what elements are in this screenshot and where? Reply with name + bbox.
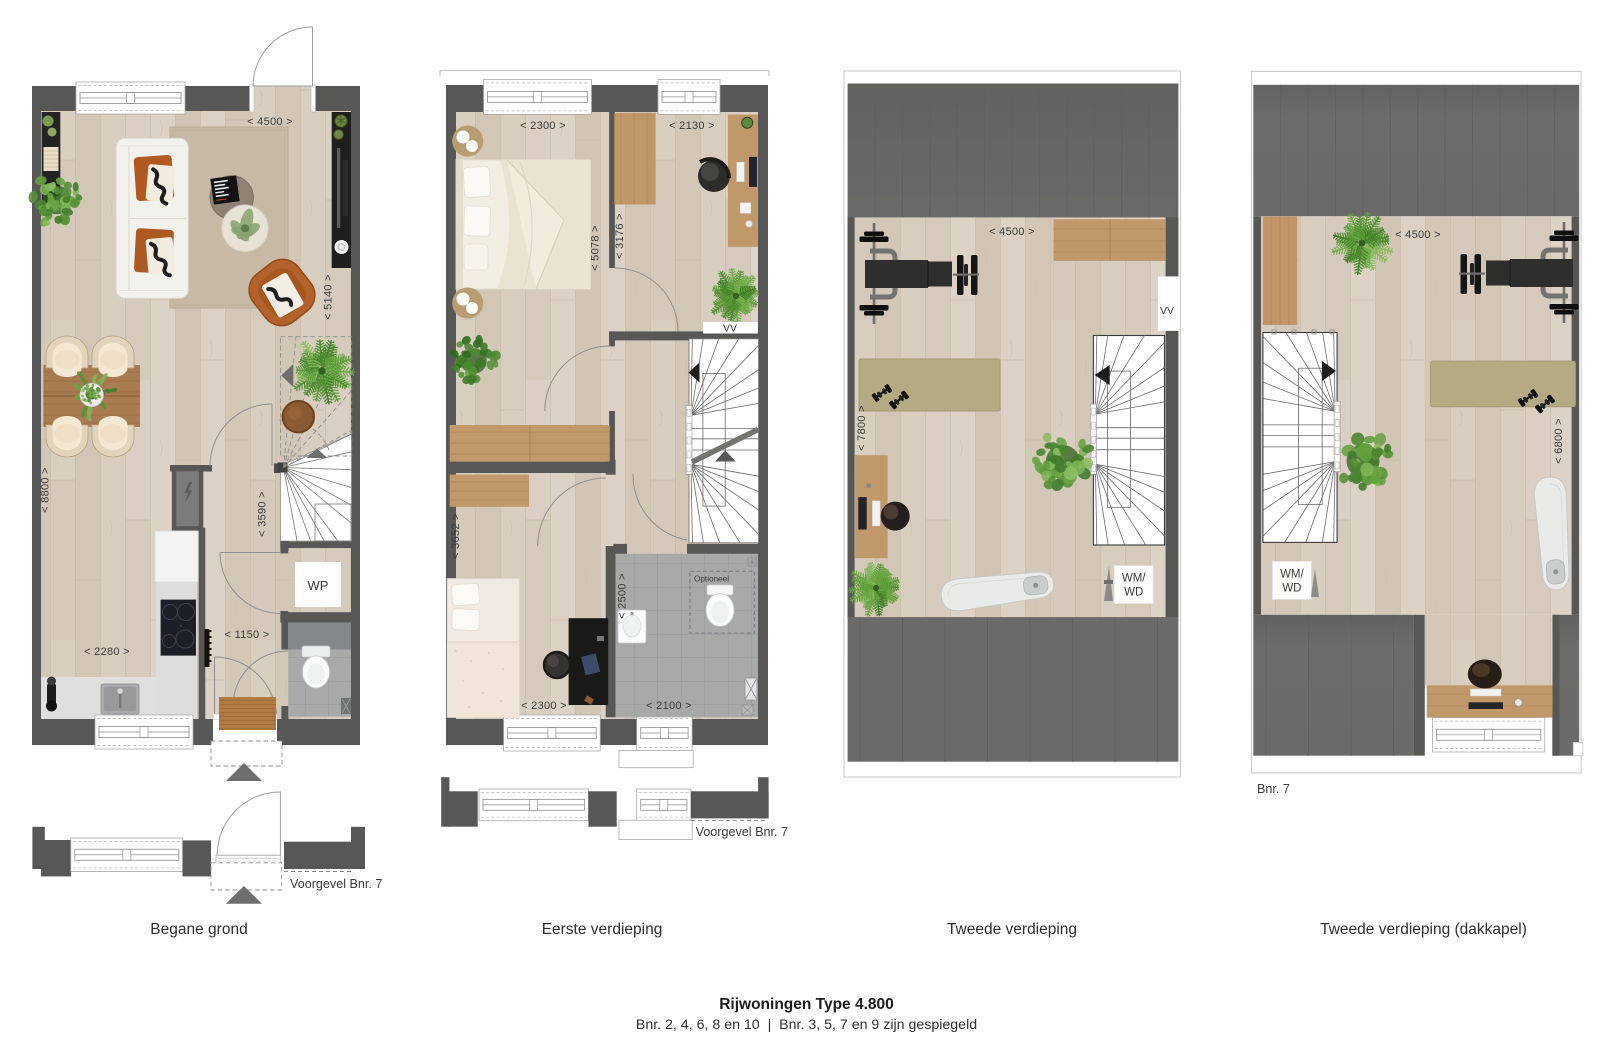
svg-text:Rijwoningen Type 4.800: Rijwoningen Type 4.800 — [719, 996, 894, 1013]
svg-text:VV: VV — [1160, 305, 1174, 317]
svg-text:VV: VV — [723, 323, 737, 335]
svg-text:< 2280 >: < 2280 > — [84, 646, 130, 658]
svg-text:< 8800 >: < 8800 > — [40, 467, 52, 513]
svg-text:< 3590 >: < 3590 > — [257, 491, 269, 537]
svg-text:Eerste verdieping: Eerste verdieping — [542, 921, 663, 938]
svg-text:WM/: WM/ — [1280, 568, 1304, 580]
svg-text:< 2130 >: < 2130 > — [669, 120, 715, 132]
svg-text:< 3176 >: < 3176 > — [614, 213, 626, 259]
svg-text:< 2500 >: < 2500 > — [617, 573, 629, 619]
svg-text:WD: WD — [1124, 587, 1143, 599]
svg-text:< 2300 >: < 2300 > — [521, 700, 567, 712]
svg-text:Voorgevel Bnr. 7: Voorgevel Bnr. 7 — [290, 877, 382, 891]
svg-text:WM/: WM/ — [1122, 573, 1146, 585]
svg-text:Bnr. 7: Bnr. 7 — [1257, 782, 1290, 796]
svg-text:< 5078 >: < 5078 > — [590, 225, 602, 271]
svg-text:WP: WP — [308, 578, 329, 593]
svg-text:< 4500 >: < 4500 > — [247, 116, 293, 128]
svg-text:< 4500 >: < 4500 > — [1395, 229, 1441, 241]
svg-text:< 4500 >: < 4500 > — [989, 226, 1035, 238]
svg-text:< 6800 >: < 6800 > — [1553, 418, 1565, 464]
svg-text:< 3652 >: < 3652 > — [450, 513, 462, 559]
svg-text:Optioneel: Optioneel — [694, 575, 729, 584]
svg-text:Voorgevel Bnr. 7: Voorgevel Bnr. 7 — [696, 825, 788, 839]
svg-text:Tweede verdieping: Tweede verdieping — [947, 921, 1077, 938]
svg-text:< 2300 >: < 2300 > — [520, 120, 566, 132]
svg-text:< 7800 >: < 7800 > — [856, 405, 868, 451]
svg-text:< 2100 >: < 2100 > — [646, 700, 692, 712]
svg-text:Begane grond: Begane grond — [150, 921, 247, 938]
svg-text:< 1150 >: < 1150 > — [224, 629, 269, 641]
svg-text:< 5140 >: < 5140 > — [323, 274, 335, 320]
svg-text:Bnr. 2, 4, 6, 8 en 10 | Bnr.: Bnr. 2, 4, 6, 8 en 10 | Bnr. 3, 5, 7 en … — [636, 1017, 977, 1033]
svg-text:WD: WD — [1282, 582, 1301, 594]
svg-text:Tweede verdieping (dakkapel): Tweede verdieping (dakkapel) — [1320, 921, 1527, 938]
